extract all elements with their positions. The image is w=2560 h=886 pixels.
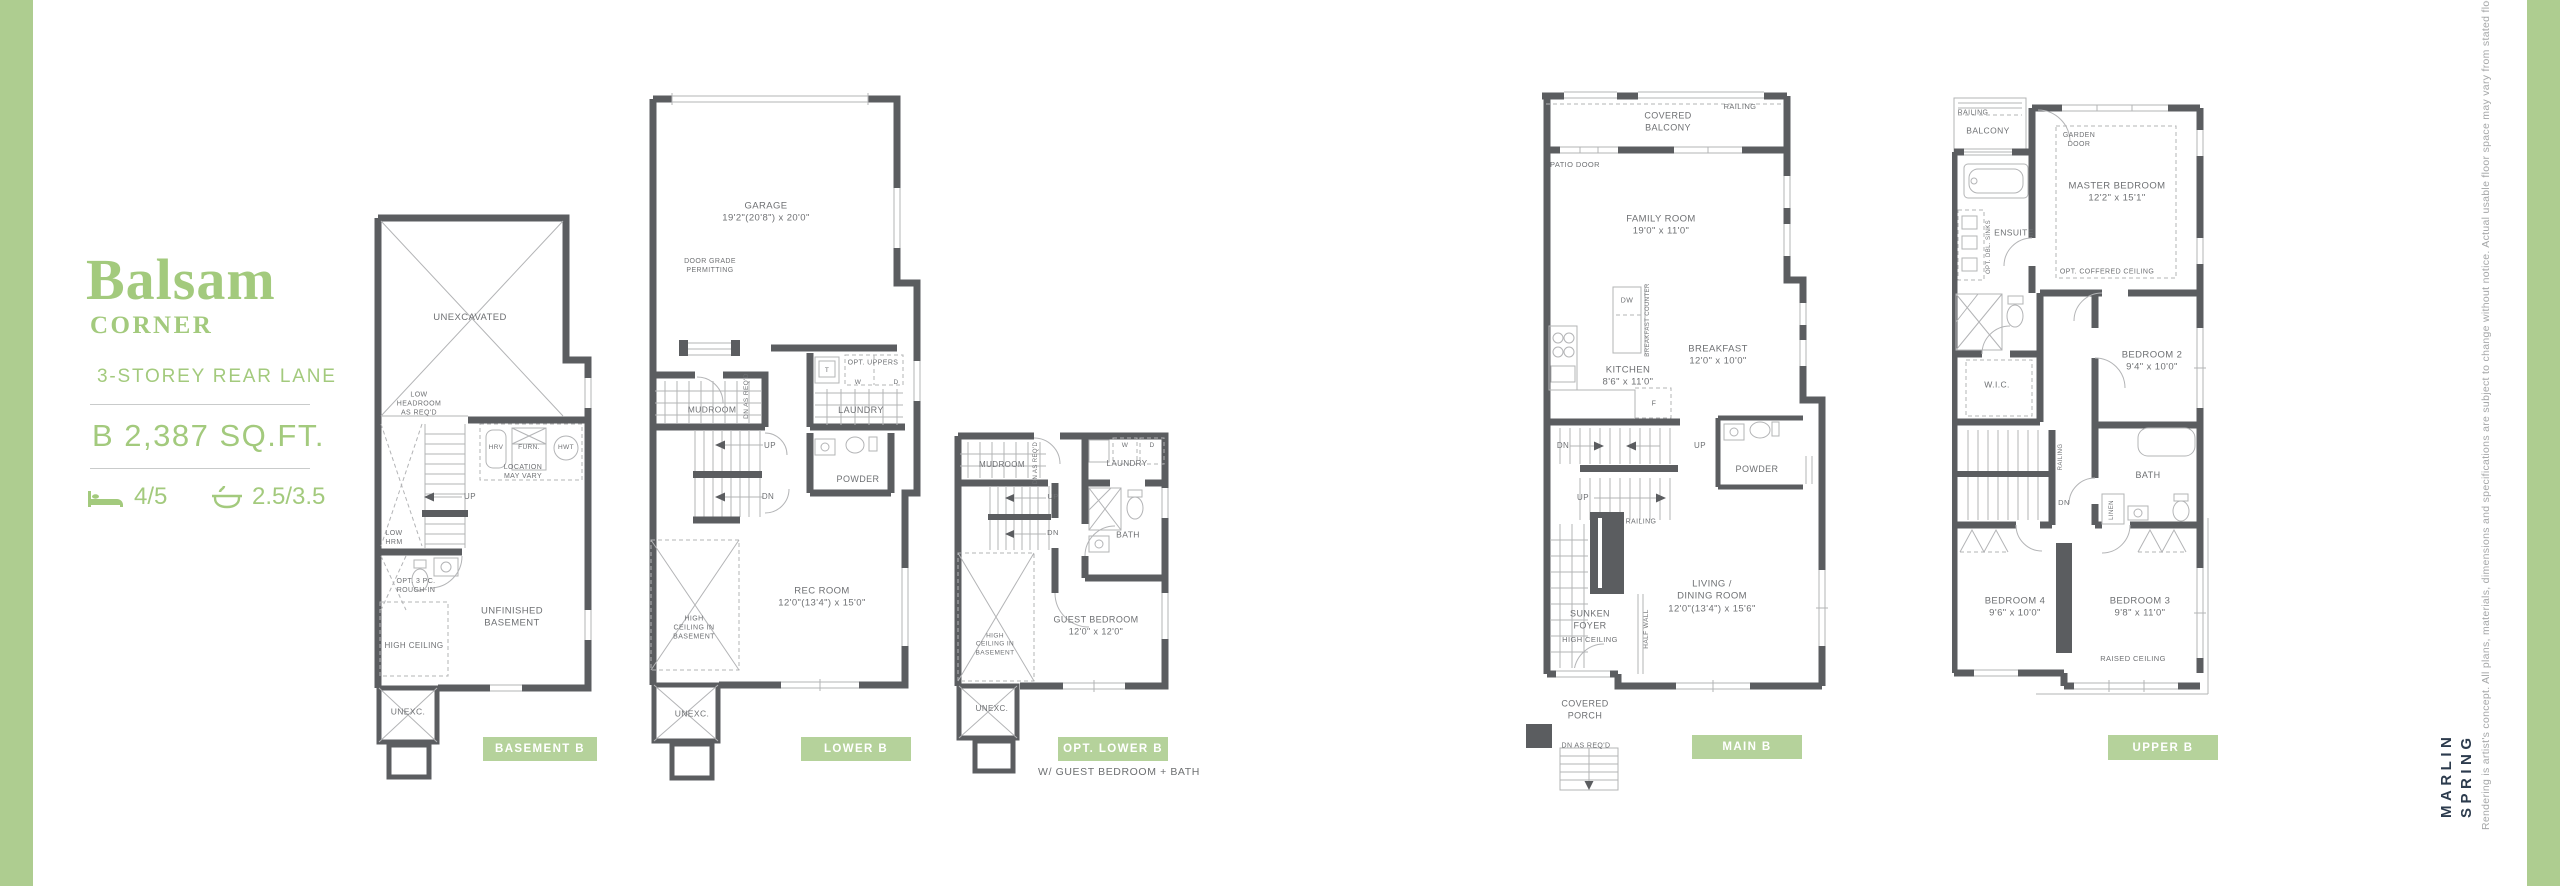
note-high-ceiling: HIGH CEILING	[384, 641, 443, 651]
appliance-label-w: W	[855, 379, 862, 387]
note-high-ceiling-basement: HIGH CEILING IN BASEMENT	[673, 614, 715, 641]
note-opt-rough-in: OPT. 3 PC. ROUGH-IN	[396, 577, 435, 595]
note-railing2: RAILING	[1626, 517, 1657, 526]
note-garden-door: GARDEN DOOR	[2063, 131, 2095, 149]
stair-label-dn: DN	[2058, 498, 2070, 508]
stair-label-dn: DN	[1557, 441, 1569, 451]
note-half-wall: HALF WALL	[1643, 609, 1651, 648]
room-label-mudroom: MUDROOM	[688, 404, 737, 415]
note-opt-uppers: OPT. UPPERS	[848, 358, 899, 367]
square-footage: B 2,387 SQ.FT.	[92, 418, 325, 454]
room-label-garage: GARAGE 19'2"(20'8") x 20'0"	[722, 201, 809, 226]
floor-label-upper: UPPER B	[2108, 735, 2218, 760]
note-raised-ceiling: RAISED CEILING	[2100, 654, 2166, 664]
room-label-kitchen: KITCHEN 8'6" x 11'0"	[1603, 365, 1654, 390]
room-label-unexcavated: UNEXCAVATED	[433, 312, 507, 324]
stair-label-up: UP	[764, 441, 776, 451]
note-dn-as-reqd: DN AS REQ'D	[1033, 442, 1041, 485]
room-label-bath: BATH	[2136, 470, 2161, 482]
appliance-label-d: D	[893, 379, 898, 387]
appliance-label-d: D	[1149, 442, 1154, 450]
room-label-powder: POWDER	[1736, 464, 1779, 476]
room-label-master-bedroom: MASTER BEDROOM 12'2" x 15'1"	[2069, 181, 2166, 206]
note-opt-coffered-ceiling: OPT. COFFERED CEILING	[2060, 267, 2154, 276]
equip-label-furn: FURN.	[518, 444, 540, 452]
room-label-covered-balcony: COVERED BALCONY	[1644, 110, 1691, 133]
room-label-family-room: FAMILY ROOM 19'0" x 11'0"	[1626, 214, 1696, 239]
stair-label-up: UP	[1047, 492, 1058, 502]
right-accent-bar	[2527, 0, 2560, 886]
room-label-breakfast: BREAKFAST 12'0" x 10'0"	[1688, 344, 1748, 369]
left-accent-bar	[0, 0, 33, 886]
lower-floorplan	[645, 93, 945, 795]
note-location-may-vary: LOCATION MAY VARY	[504, 463, 542, 481]
room-label-bedroom3: BEDROOM 3 9'8" x 11'0"	[2110, 596, 2171, 621]
stair-label-up: UP	[1694, 441, 1706, 451]
floor-label-lower: LOWER B	[801, 737, 911, 761]
room-label-sunken-foyer: SUNKEN FOYER	[1570, 608, 1610, 631]
room-label-balcony: BALCONY	[1966, 125, 2009, 136]
note-railing2: RAILING	[2058, 444, 2066, 471]
note-opt-dbl-sinks: OPT. DBL. SINKS	[1986, 220, 1994, 274]
room-label-covered-porch: COVERED PORCH	[1561, 698, 1608, 721]
note-railing: RAILING	[1958, 108, 1989, 117]
model-name: Balsam	[86, 246, 276, 313]
room-label-laundry: LAUNDRY	[1107, 459, 1148, 469]
floor-caption-opt-lower: W/ GUEST BEDROOM + BATH	[1038, 766, 1200, 778]
note-dn-as-reqd: DN AS REQ'D	[743, 373, 751, 419]
basement-floorplan	[370, 210, 602, 785]
equip-label-hrv: HRV	[489, 444, 504, 452]
floorplan-sheet: Balsam CORNER 3-STOREY REAR LANE B 2,387…	[0, 0, 2560, 886]
room-label-mudroom: MUDROOM	[979, 460, 1025, 470]
note-breakfast-counter: BREAKFAST COUNTER	[1645, 283, 1653, 356]
note-dn-as-reqd: DN AS REQ'D	[1562, 741, 1611, 750]
floor-label-main: MAIN B	[1692, 735, 1802, 759]
model-collection: CORNER	[90, 312, 213, 340]
room-label-bedroom2: BEDROOM 2 9'4" x 10'0"	[2122, 350, 2183, 375]
room-label-rec-room: REC ROOM 12'0"(13'4") x 15'0"	[778, 586, 865, 611]
stair-label-dn: DN	[762, 492, 774, 502]
appliance-label-t: T	[825, 367, 829, 375]
beds-count: 4/5	[134, 483, 167, 511]
stair-label-dn: DN	[1047, 528, 1059, 538]
room-label-wic: W.I.C.	[1984, 379, 2010, 390]
room-label-unfinished-basement: UNFINISHED BASEMENT	[481, 606, 543, 631]
note-door-grade: DOOR GRADE PERMITTING	[684, 257, 736, 275]
room-label-bedroom4: BEDROOM 4 9'6" x 10'0"	[1985, 596, 2046, 621]
stair-label-up: UP	[464, 492, 476, 502]
appliance-label-w: W	[1122, 442, 1129, 450]
divider	[90, 404, 310, 405]
room-label-living-dining: LIVING / DINING ROOM 12'0"(13'4") x 15'6…	[1668, 578, 1755, 615]
bath-icon	[210, 484, 244, 515]
builder-logo: MARLIN SPRING	[2437, 686, 2476, 818]
appliance-label-dw: DW	[1621, 296, 1633, 305]
room-label-bath: BATH	[1116, 529, 1140, 540]
bed-icon	[86, 484, 126, 515]
note-high-ceiling: HIGH CEILING	[1562, 635, 1618, 645]
room-label-unexc: UNEXC.	[391, 706, 426, 717]
baths-count: 2.5/3.5	[252, 483, 325, 511]
equip-label-hwt: HWT	[558, 444, 574, 452]
note-linen: LINEN	[2109, 500, 2117, 520]
note-railing: RAILING	[1724, 102, 1757, 112]
floor-label-basement: BASEMENT B	[483, 737, 597, 761]
room-label-ensuite: ENSUITE	[1994, 227, 2034, 238]
legal-disclaimer: Rendering is artist's concept. All plans…	[2480, 140, 2496, 830]
storey-type: 3-STOREY REAR LANE	[97, 366, 337, 388]
room-label-unexc: UNEXC.	[675, 708, 710, 719]
note-low-hrm: LOW HRM	[385, 529, 402, 547]
floor-label-opt-lower: OPT. LOWER B	[1058, 737, 1168, 761]
room-label-powder: POWDER	[837, 474, 880, 486]
room-label-unexc: UNEXC.	[976, 704, 1009, 714]
appliance-label-fridge: F	[1652, 399, 1657, 408]
stair-label-up2: UP	[1577, 493, 1589, 503]
note-high-ceiling-basement: HIGH CEILING IN BASEMENT	[976, 632, 1015, 657]
note-low-headroom: LOW HEADROOM AS REQ'D	[397, 390, 441, 417]
room-label-laundry: LAUNDRY	[838, 405, 884, 417]
note-patio-door: PATIO DOOR	[1550, 160, 1600, 170]
divider	[90, 468, 310, 469]
room-label-guest-bedroom: GUEST BEDROOM 12'0" x 12'0"	[1053, 614, 1138, 637]
